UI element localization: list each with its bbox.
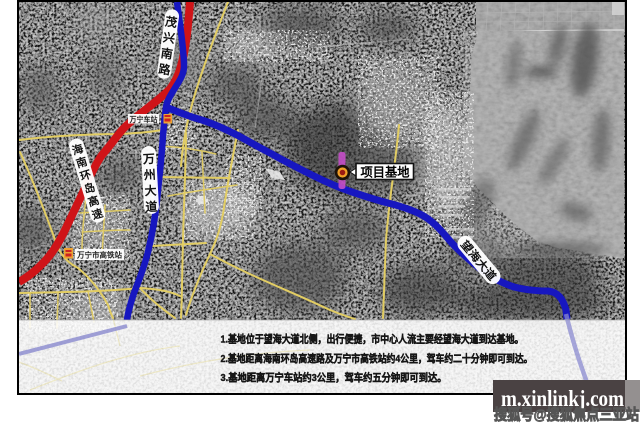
svg-text:项目基地: 项目基地 [361, 165, 410, 180]
svg-text:搜狐号@搜狐焦点三亚站: 搜狐号@搜狐焦点三亚站 [494, 406, 639, 424]
svg-text:大: 大 [144, 183, 157, 199]
svg-text:万: 万 [142, 152, 156, 167]
svg-text:万宁车站: 万宁车站 [129, 114, 158, 124]
svg-text:万宁市高铁站: 万宁市高铁站 [76, 250, 122, 260]
svg-text:茂: 茂 [164, 13, 178, 30]
svg-text:州: 州 [142, 168, 156, 183]
svg-text:南: 南 [160, 45, 174, 62]
svg-text:1.基地位于望海大道北侧，出行便捷，市中心人流主要经望海大道: 1.基地位于望海大道北侧，出行便捷，市中心人流主要经望海大道到达基地。 [221, 333, 524, 346]
svg-text:3.基地距离万宁车站约3公里，驾车约五分钟即可到达。: 3.基地距离万宁车站约3公里，驾车约五分钟即可到达。 [221, 371, 447, 384]
svg-text:道: 道 [145, 199, 158, 215]
svg-text:兴: 兴 [162, 29, 176, 46]
svg-text:2.基地距离海南环岛高速路及万宁市高铁站约4公里，驾车约二十: 2.基地距离海南环岛高速路及万宁市高铁站约4公里，驾车约二十分钟即可到达。 [221, 352, 533, 365]
